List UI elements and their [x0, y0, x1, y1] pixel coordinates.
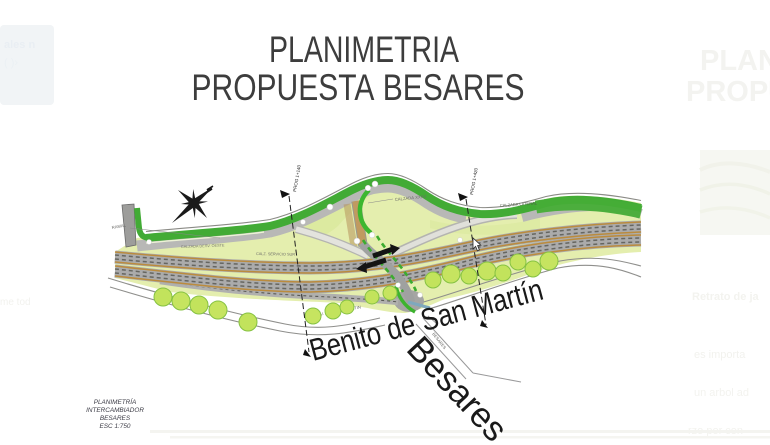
svg-text:PROG 1+420: PROG 1+420	[469, 167, 479, 195]
svg-text:PROPUESTA BESARES: PROPUESTA BESARES	[192, 66, 525, 108]
svg-text:PLANIMETRIA: PLANIMETRIA	[269, 28, 459, 70]
svg-text:CALZ. SERVICIO SUR: CALZ. SERVICIO SUR	[256, 252, 295, 257]
svg-text:un arbol ad: un arbol ad	[694, 387, 749, 399]
svg-text:( )›: ( )›	[4, 57, 18, 69]
svg-text:PROPUES: PROPUES	[686, 76, 770, 108]
svg-text:PLANIMETRÍA: PLANIMETRÍA	[94, 397, 137, 406]
svg-text:BESARES: BESARES	[100, 415, 131, 422]
svg-text:me tod: me tod	[0, 297, 31, 308]
svg-text:es importa: es importa	[694, 349, 746, 361]
svg-text:INTERCAMBIADOR: INTERCAMBIADOR	[86, 407, 144, 414]
svg-text:ales n: ales n	[4, 39, 35, 51]
svg-text:Retrato de ja: Retrato de ja	[692, 291, 760, 303]
svg-text:Besares: Besares	[399, 329, 515, 445]
svg-text:PROG 1+140: PROG 1+140	[292, 164, 302, 192]
svg-text:PLANI: PLANI	[700, 45, 770, 77]
svg-text:ESC 1:750: ESC 1:750	[100, 423, 131, 430]
